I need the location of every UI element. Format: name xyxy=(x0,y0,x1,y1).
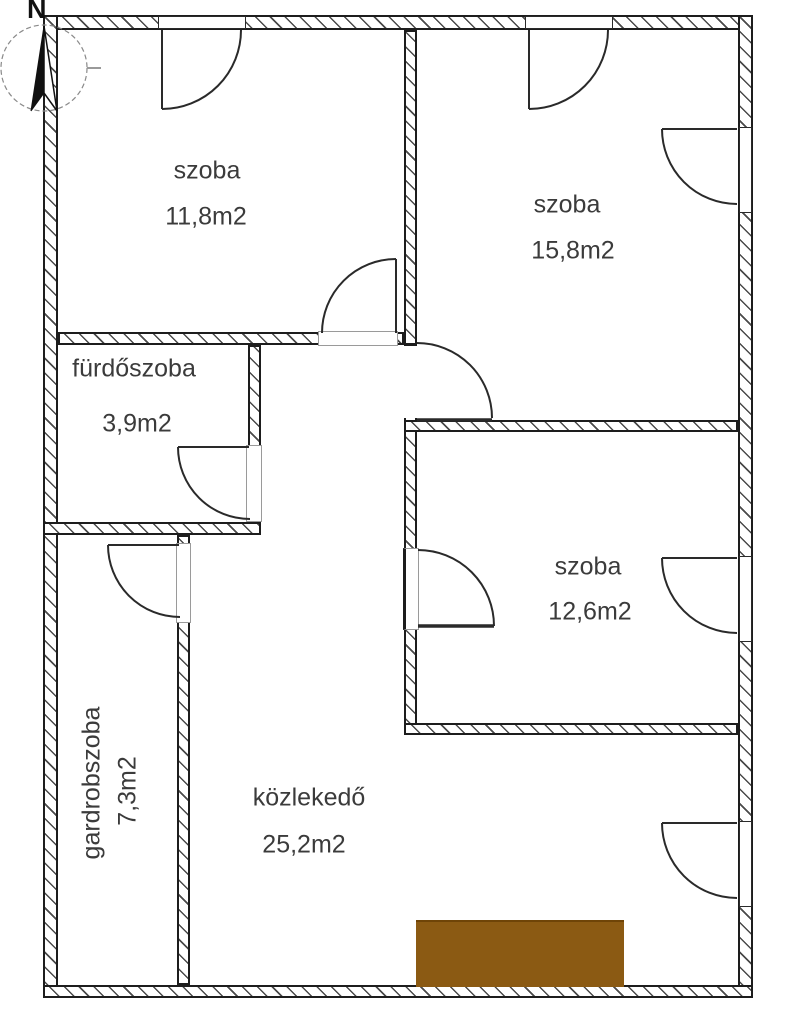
wall-room3-bottom xyxy=(404,723,738,735)
room-area-szoba-top-right: 15,8m2 xyxy=(531,237,614,266)
door-gap-room2-interior xyxy=(403,346,418,418)
room-area-kozlekedo: 25,2m2 xyxy=(262,831,345,860)
door-swing-overlay xyxy=(0,0,799,1024)
door-arc-room3-right xyxy=(662,558,737,633)
wall-divider-right-rooms xyxy=(404,420,738,432)
room-area-furdoszoba: 3,9m2 xyxy=(102,410,171,439)
compass-north-label: N xyxy=(27,0,47,25)
door-arc-bathroom xyxy=(178,447,250,519)
door-gap-room1-interior xyxy=(318,331,398,346)
door-frame-room2-right xyxy=(739,127,752,213)
wall-exterior-top xyxy=(43,15,753,30)
entrance-marker xyxy=(416,920,624,987)
room-name-szoba-top-left: szoba xyxy=(174,157,241,186)
door-gap-bathroom xyxy=(246,445,262,522)
door-frame-hall-right xyxy=(739,821,752,907)
room-area-gardrobszoba: 7,3m2 xyxy=(114,756,143,825)
door-arc-room1-top xyxy=(162,30,241,109)
floor-plan: N szoba 11,8m2 szoba 15,8m2 fürdőszoba 3… xyxy=(0,0,799,1024)
door-arc-room2-top xyxy=(529,30,608,109)
room-name-gardrobszoba: gardrobszoba xyxy=(78,707,107,860)
door-gap-room3-interior xyxy=(403,548,419,630)
door-gap-wardrobe xyxy=(176,543,191,623)
room-name-szoba-top-right: szoba xyxy=(534,191,601,220)
door-frame-room1-top xyxy=(158,16,246,29)
room-name-furdoszoba: fürdőszoba xyxy=(72,355,196,384)
door-arc-room3-interior xyxy=(418,550,494,626)
wall-bathroom-bottom xyxy=(43,522,261,535)
wall-exterior-left xyxy=(43,15,58,998)
wall-exterior-bottom xyxy=(43,985,753,998)
door-arc-room2-right xyxy=(662,129,737,204)
wall-divider-top-rooms xyxy=(404,30,417,345)
door-frame-room3-right xyxy=(739,556,752,642)
door-arc-room1-interior xyxy=(322,259,396,333)
door-arc-room2-interior xyxy=(417,343,492,418)
door-frame-room2-top xyxy=(525,16,613,29)
door-arc-wardrobe xyxy=(108,545,180,617)
room-area-szoba-mid-right: 12,6m2 xyxy=(548,598,631,627)
room-area-szoba-top-left: 11,8m2 xyxy=(165,203,247,232)
room-name-kozlekedo: közlekedő xyxy=(253,784,366,813)
door-arc-hall-right xyxy=(662,823,737,898)
room-name-szoba-mid-right: szoba xyxy=(555,553,622,582)
